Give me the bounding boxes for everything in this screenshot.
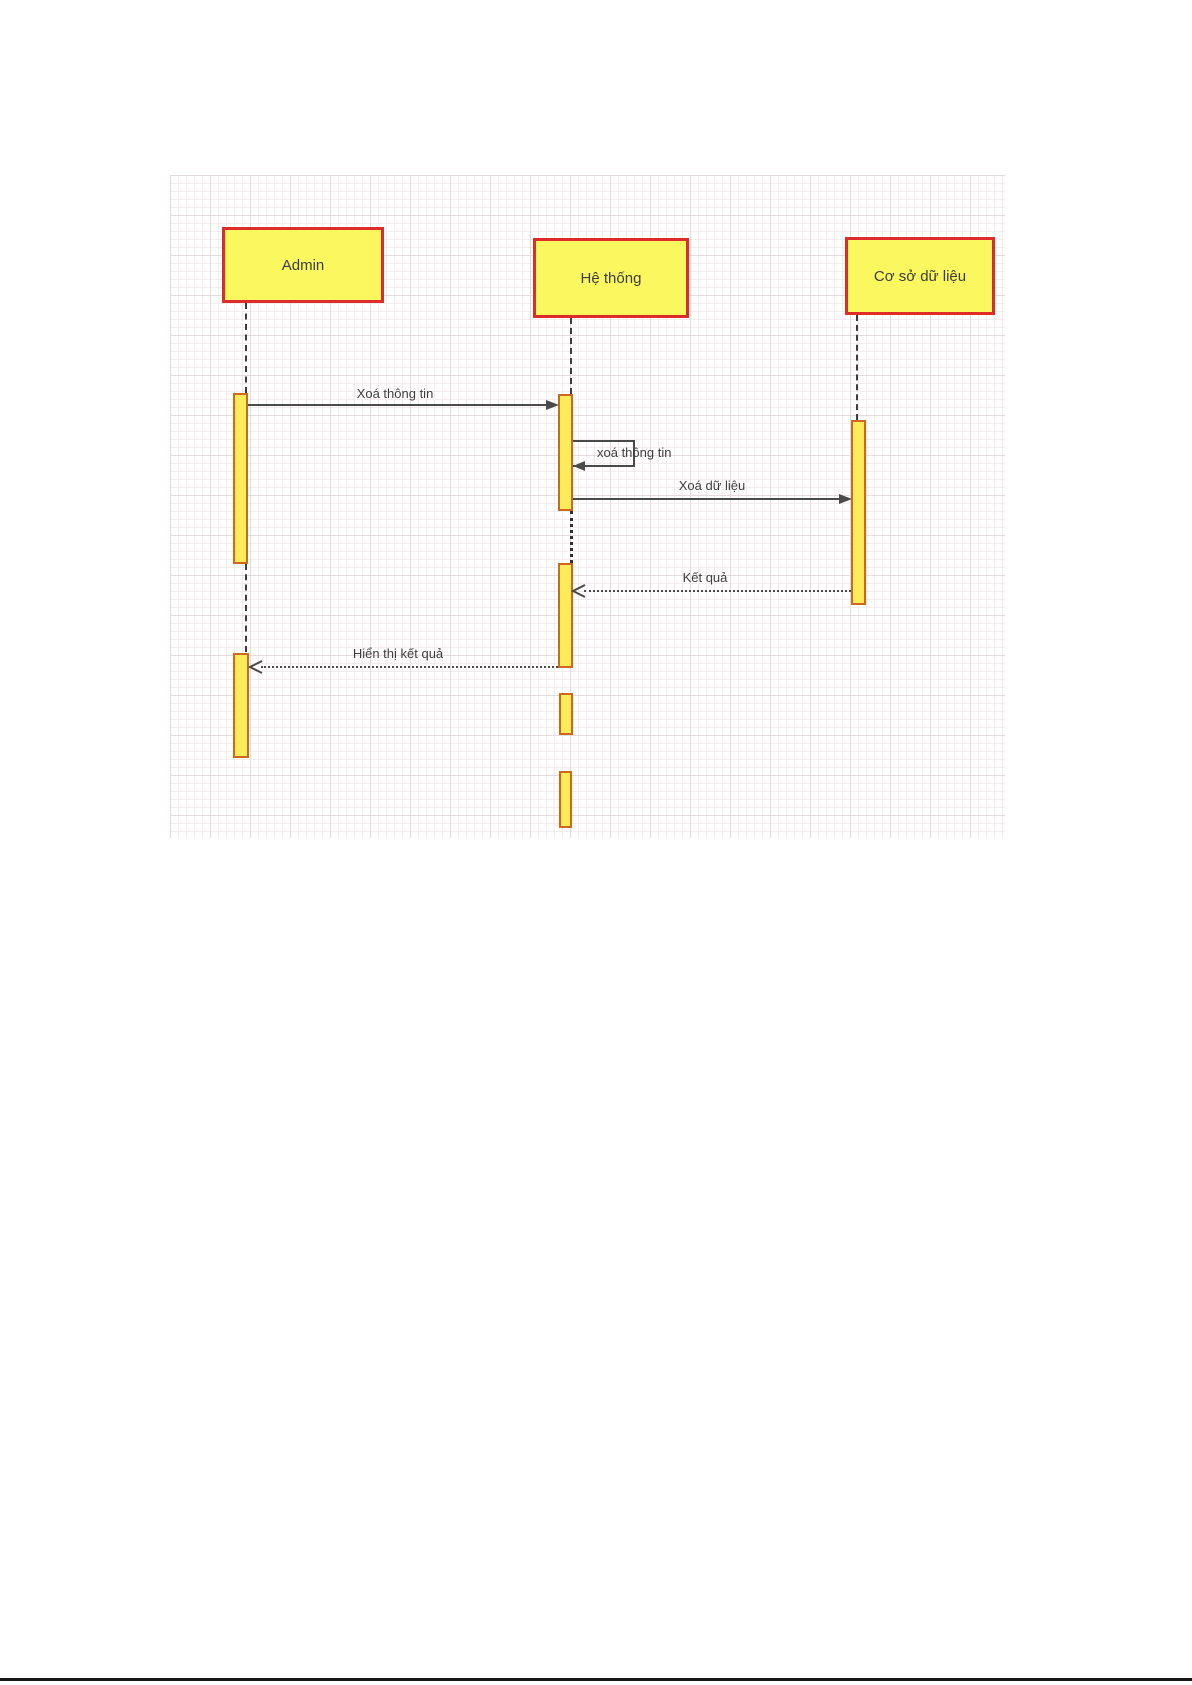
activation-bar-admin-2 — [233, 653, 249, 758]
message-line-ket-qua — [584, 590, 851, 592]
lifeline-admin-segment-1 — [245, 303, 247, 393]
arrowhead-open-left-icon — [248, 660, 264, 674]
activation-bar-system-1 — [558, 394, 573, 511]
message-label-xoa-thong-tin: Xoá thông tin — [328, 386, 462, 401]
message-line-xoa-thong-tin — [248, 404, 547, 406]
activation-bar-database-1 — [851, 420, 866, 605]
activation-bar-system-4 — [559, 771, 572, 828]
message-label-self-xoa-thong-tin: xoá thông tin — [597, 445, 671, 460]
arrowhead-filled-right-icon — [546, 400, 559, 410]
arrowhead-filled-right-icon — [839, 494, 852, 504]
activation-bar-system-2 — [558, 563, 573, 668]
page-bottom-rule — [0, 1678, 1192, 1681]
message-label-xoa-du-lieu: Xoá dữ liệu — [648, 478, 776, 493]
actor-label-admin: Admin — [282, 257, 325, 274]
lifeline-admin-segment-2 — [245, 564, 247, 652]
actor-label-database: Cơ sở dữ liệu — [874, 268, 966, 285]
actor-box-admin: Admin — [222, 227, 384, 303]
arrowhead-open-left-icon — [571, 584, 587, 598]
page: Admin Hệ thống Cơ sở dữ liệu Xoá thông t… — [0, 0, 1192, 1685]
activation-bar-admin-1 — [233, 393, 248, 564]
lifeline-system-segment-2 — [570, 511, 573, 563]
activation-bar-system-3 — [559, 693, 573, 735]
message-line-hien-thi-ket-qua — [261, 666, 558, 668]
lifeline-system-segment-1 — [570, 318, 572, 394]
actor-label-system: Hệ thống — [581, 270, 642, 287]
lifeline-database-segment-1 — [856, 315, 858, 420]
message-line-xoa-du-lieu — [573, 498, 840, 500]
arrowhead-filled-left-icon — [573, 461, 585, 471]
actor-box-database: Cơ sở dữ liệu — [845, 237, 995, 315]
actor-box-system: Hệ thống — [533, 238, 689, 318]
diagram-canvas: Admin Hệ thống Cơ sở dữ liệu Xoá thông t… — [170, 175, 1005, 838]
message-label-hien-thi-ket-qua: Hiển thị kết quả — [318, 646, 478, 661]
message-label-ket-qua: Kết quả — [635, 570, 775, 585]
